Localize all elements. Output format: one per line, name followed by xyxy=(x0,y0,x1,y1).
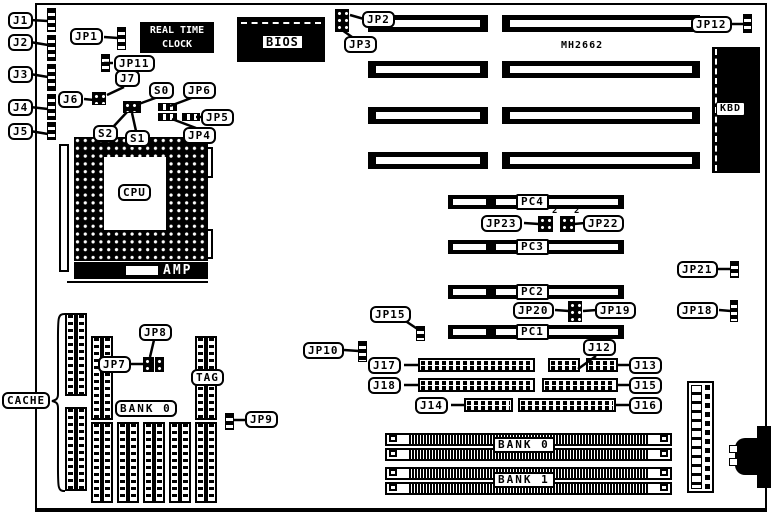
callout-jp12: JP12 xyxy=(691,16,732,33)
header-j17 xyxy=(418,358,535,372)
connector-j1 xyxy=(47,8,56,32)
header-j15 xyxy=(542,378,618,392)
callout-j14: J14 xyxy=(415,397,448,414)
callout-jp21: JP21 xyxy=(677,261,718,278)
callout-jp3: JP3 xyxy=(344,36,377,53)
header-j16 xyxy=(518,398,616,412)
simm-bank1-label: BANK 1 xyxy=(493,472,555,488)
cache-socket-2 xyxy=(65,407,87,491)
jumper-block-j6 xyxy=(92,92,106,105)
callout-s0: S0 xyxy=(149,82,174,99)
callout-jp23: JP23 xyxy=(481,215,522,232)
bank0-socket-5 xyxy=(195,422,217,503)
jumper-block-jp23 xyxy=(538,216,553,232)
switch-block-s0-s1-s2 xyxy=(123,101,141,113)
jumper-jp5 xyxy=(182,113,200,121)
callout-s2: S2 xyxy=(93,125,118,142)
bios-label: BIOS xyxy=(261,34,304,50)
simm-bank0-label: BANK 0 xyxy=(493,437,555,453)
isa-slot-2-right xyxy=(502,61,700,78)
header-j14 xyxy=(464,398,513,412)
din-pin-slot-2 xyxy=(729,458,738,466)
header-j18 xyxy=(418,378,535,392)
callout-s1: S1 xyxy=(125,130,150,147)
jp23-pin2-marker: 2 xyxy=(552,206,557,216)
rtc-text-line2: CLOCK xyxy=(140,38,214,52)
cache-socket-3 xyxy=(91,336,113,420)
callout-jp15: JP15 xyxy=(370,306,411,323)
bios-chip-notch xyxy=(241,22,321,24)
jumper-jp15 xyxy=(416,326,425,341)
jumper-block-jp2-jp3 xyxy=(335,9,349,32)
connector-j2 xyxy=(47,35,56,61)
header-j12 xyxy=(548,358,580,372)
cache-socket-1 xyxy=(65,313,87,396)
isa-slot-3-left xyxy=(368,107,488,124)
din-pin-slot-1 xyxy=(729,445,738,453)
bank0-socket-1 xyxy=(91,422,113,503)
callout-j5: J5 xyxy=(8,123,33,140)
motherboard-diagram: REAL TIME CLOCK AMP BIOS MH2662 KBD PC4 xyxy=(0,0,771,520)
isa-slot-4-left xyxy=(368,152,488,169)
jumper-jp18 xyxy=(730,300,738,322)
callout-j18: J18 xyxy=(368,377,401,394)
callout-jp18: JP18 xyxy=(677,302,718,319)
callout-jp6: JP6 xyxy=(183,82,216,99)
callout-jp7: JP7 xyxy=(98,356,131,373)
callout-j4: J4 xyxy=(8,99,33,116)
cpu-socket-lever xyxy=(59,144,69,272)
callout-jp8: JP8 xyxy=(139,324,172,341)
callout-jp10: JP10 xyxy=(303,342,344,359)
callout-j16: J16 xyxy=(629,397,662,414)
jumper-block-jp7 xyxy=(143,357,154,372)
power-connector xyxy=(687,381,714,493)
jumper-jp12 xyxy=(743,14,752,33)
kbd-label: KBD xyxy=(716,102,745,116)
jp22-pin2-marker: 2 xyxy=(574,206,579,216)
jumper-block-jp8 xyxy=(155,357,164,372)
callout-tag: TAG xyxy=(191,369,224,386)
din-connector-barrel xyxy=(735,438,761,475)
amp-bar-window xyxy=(126,266,158,275)
jumper-block-jp22 xyxy=(560,216,575,232)
callout-jp20: JP20 xyxy=(513,302,554,319)
amp-bar-underline xyxy=(67,281,208,283)
cpu-socket-tab-top xyxy=(206,147,213,178)
jumper-jp11 xyxy=(101,54,110,72)
jumper-jp9 xyxy=(225,413,234,430)
callout-j1: J1 xyxy=(8,12,33,29)
cpu-socket-tab-bottom xyxy=(206,229,213,259)
callout-jp5: JP5 xyxy=(201,109,234,126)
chipset-text: MH2662 xyxy=(561,40,603,51)
bank0-socket-4 xyxy=(169,422,191,503)
connector-j3 xyxy=(47,64,56,91)
callout-cpu: CPU xyxy=(118,184,151,201)
jumper-jp4 xyxy=(158,113,177,121)
callout-jp2: JP2 xyxy=(362,11,395,28)
jumper-jp1 xyxy=(117,27,126,50)
callout-j17: J17 xyxy=(368,357,401,374)
jumper-jp10 xyxy=(358,341,367,362)
header-j13 xyxy=(586,358,618,372)
callout-jp1: JP1 xyxy=(70,28,103,45)
isa-slot-1-right xyxy=(502,15,700,32)
callout-j2: J2 xyxy=(8,34,33,51)
pc4-label: PC4 xyxy=(516,194,549,210)
isa-slot-4-right xyxy=(502,152,700,169)
callout-j15: J15 xyxy=(629,377,662,394)
jumper-jp21 xyxy=(730,261,739,278)
callout-cache-bank0: BANK 0 xyxy=(115,400,177,417)
jumper-jp6 xyxy=(158,103,177,111)
real-time-clock-chip: REAL TIME CLOCK xyxy=(140,22,214,53)
isa-slot-2-left xyxy=(368,61,488,78)
callout-j12: J12 xyxy=(583,339,616,356)
bank0-socket-2 xyxy=(117,422,139,503)
callout-j13: J13 xyxy=(629,357,662,374)
pc3-label: PC3 xyxy=(516,239,549,255)
callout-j6: J6 xyxy=(58,91,83,108)
callout-jp19: JP19 xyxy=(595,302,636,319)
callout-j7: J7 xyxy=(115,70,140,87)
callout-jp9: JP9 xyxy=(245,411,278,428)
jumper-block-jp20-jp19 xyxy=(568,301,582,322)
amp-label: AMP xyxy=(163,263,192,278)
isa-slot-3-right xyxy=(502,107,700,124)
connector-j5 xyxy=(47,122,56,140)
pc1-label: PC1 xyxy=(516,324,549,340)
connector-j4 xyxy=(47,94,56,120)
callout-cache: CACHE xyxy=(2,392,50,409)
pc2-label: PC2 xyxy=(516,284,549,300)
callout-jp22: JP22 xyxy=(583,215,624,232)
callout-j3: J3 xyxy=(8,66,33,83)
callout-jp4: JP4 xyxy=(183,127,216,144)
rtc-text-line1: REAL TIME xyxy=(140,24,214,38)
bank0-socket-3 xyxy=(143,422,165,503)
